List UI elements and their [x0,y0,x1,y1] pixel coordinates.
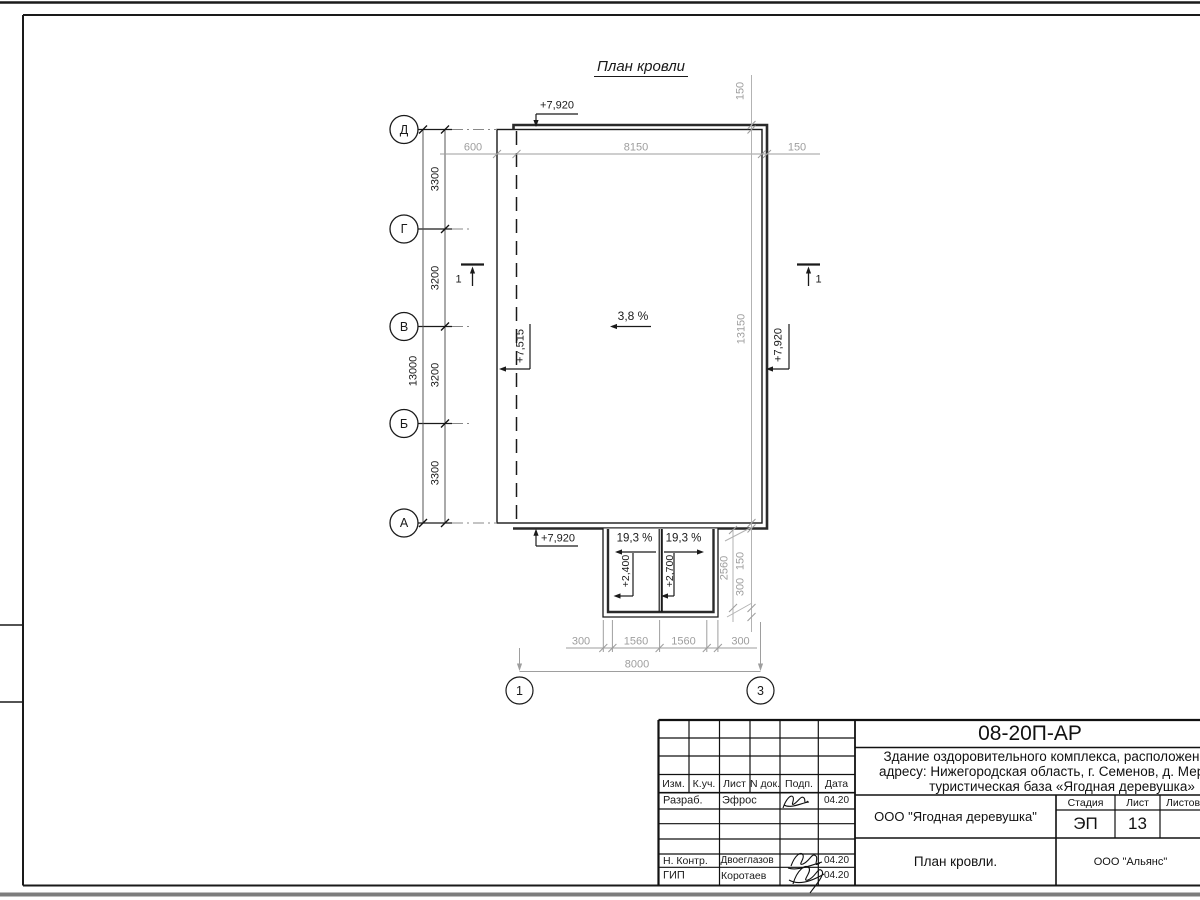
axis-label-b: Б [400,417,408,430]
axis-label-g: Г [401,223,408,236]
dim-bottom-300b: 300 [731,637,749,648]
dim-bottom-total: 8000 [625,659,649,670]
col-header-ndok: N док. [750,778,780,789]
dim-top-600: 600 [464,142,482,153]
sheet-header: Лист [1115,795,1160,810]
dim-top-150: 150 [788,143,806,154]
dim-left-3200a: 3200 [431,266,442,290]
project-description-line3: туристическая база «Ягодная деревушка» [855,779,1200,794]
stage-header: Стадия [1056,795,1115,810]
project-description: Здание оздоровительного комплекса, распо… [855,749,1200,794]
role-razrab: Разраб. [663,796,703,807]
dim-right-total: 13150 [737,314,748,345]
elev-right: +7,920 [774,328,785,362]
dim-bottom-1560b: 1560 [671,637,695,648]
col-header-data: Дата [825,778,848,789]
dim-porch-300: 300 [736,578,747,596]
role-nkontr: Н. Контр. [663,855,708,866]
axis-label-1: 1 [516,684,523,697]
dim-left-3200b: 3200 [431,363,442,387]
dim-left-3300a: 3300 [431,167,442,191]
doc-code: 08-20П-АР [855,720,1200,747]
dim-left-total: 13000 [409,356,420,387]
col-axis-circles [506,677,774,704]
dim-top-8150: 8150 [624,143,648,154]
axis-label-3: 3 [757,684,764,697]
sheets-header: Листов [1160,795,1200,810]
date-razrab: 04.20 [824,796,849,806]
elev-bottom: +7,920 [541,533,575,544]
elev-top: +7,920 [540,101,574,112]
elev-porch-2700: +2,700 [665,555,676,587]
axis-label-d: Д [400,123,408,136]
section-label-left: 1 [455,275,461,286]
slope-porch-right-label: 19,3 % [666,533,702,545]
elev-left: +7,515 [516,329,527,363]
role-gip: ГИП [663,870,685,881]
name-korotaev: Коротаев [721,870,766,881]
dim-bottom-1560a: 1560 [624,637,648,648]
elev-porch-2400: +2,400 [621,555,632,587]
section-label-right: 1 [815,275,821,286]
col-header-kuch: К.уч. [693,778,716,789]
date-nkontr: 04.20 [824,856,849,866]
project-description-line2: адресу: Нижегородская область, г. Семено… [855,764,1200,779]
stage-value: ЭП [1056,810,1115,838]
doc-title: План кровли. [855,838,1056,885]
axis-label-a: А [400,517,408,530]
axis-label-v: В [400,320,408,333]
project-description-line1: Здание оздоровительного комплекса, распо… [855,749,1200,764]
date-gip: 04.20 [824,871,849,881]
drawing-title: План кровли [594,59,688,77]
col-header-list: Лист [723,778,746,789]
slope-porch-left-label: 19,3 % [617,533,653,545]
slope-main-label: 3,8 % [618,310,649,322]
name-efros: Эфрос [722,796,757,807]
org-name: ООО "Ягодная деревушка" [855,795,1056,838]
dim-porch-150: 150 [736,552,747,570]
sheet-value: 13 [1115,810,1160,838]
company-name: ООО "Альянс" [1056,838,1200,885]
col-header-izm: Изм. [662,778,685,789]
dim-porch-2560: 2560 [720,556,731,580]
dim-parapet-150: 150 [736,82,747,100]
col-header-podp: Подп. [785,778,813,789]
dim-left-3300b: 3300 [431,461,442,485]
name-dvoeglazov: Двоеглазов [721,856,774,866]
drawing-sheet: { "drawing": { "title": "План кровли", "… [0,0,1200,900]
dim-bottom-300a: 300 [572,637,590,648]
